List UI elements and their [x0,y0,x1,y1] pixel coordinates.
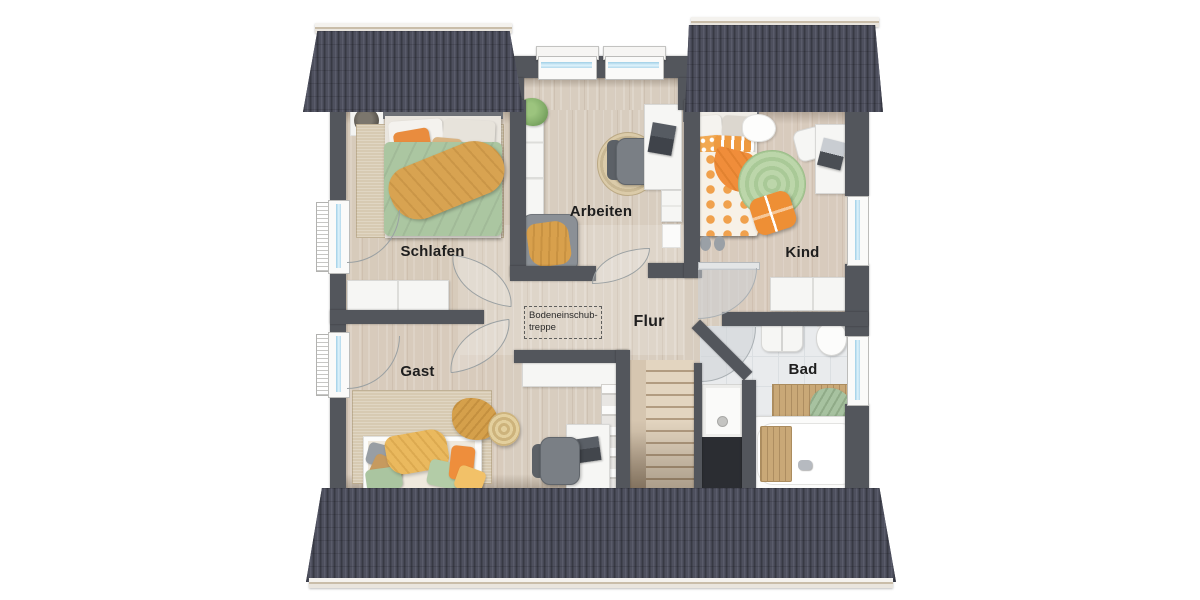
wall-right [845,404,869,492]
attic-hatch-annotation: Bodeneinschub- treppe [524,306,602,339]
wall-schlafen-arbeiten [510,100,526,277]
kind-sideboard [770,277,856,311]
slipper [700,236,711,251]
wall-bad-west [742,380,756,492]
woven-pouf [488,412,520,446]
window-glass [336,336,341,392]
wall-dormer [662,56,690,78]
floor-plan: Schlafen Arbeiten Kind Flur Gast Bad Bod… [0,0,1200,600]
roof-ridge-bottom [309,578,893,588]
roof-top-right [685,25,883,112]
window-glass [541,62,592,68]
dormer-window [538,56,597,80]
window-glass [608,62,659,68]
attic-hatch-line1: Bodeneinschub- [529,310,597,322]
wall-stairs-west [616,350,630,492]
window-glass [336,204,341,268]
dormer-window [605,56,664,80]
window-glass [855,200,860,260]
roof-top-left [303,31,524,112]
arbeiten-papers [662,224,681,248]
wall-stairs-east [694,363,702,492]
room-label-bad: Bad [770,361,836,378]
laptop [648,122,677,156]
wall-arbeiten-flur [510,266,596,281]
toilet [816,322,847,356]
wall-bad-north [722,312,868,326]
room-label-gast: Gast [385,363,450,380]
shower-drain [717,416,728,427]
shower-tray [702,384,744,438]
bathtub-caddy [760,426,792,482]
wall-schlafen-gast [330,310,484,324]
wall-left [330,396,346,492]
flur-office-chair [540,437,580,485]
wall-right [845,100,869,196]
bathtub-faucet [798,460,812,470]
room-label-arbeiten: Arbeiten [550,203,652,220]
wall-arbeiten-kind [684,100,700,278]
room-label-schlafen: Schlafen [380,243,485,260]
room-label-kind: Kind [770,244,835,261]
room-label-flur: Flur [615,313,683,331]
armchair-blanket [525,219,573,268]
attic-hatch-line2: treppe [529,322,597,334]
roof-bottom [306,488,896,582]
arbeiten-drawers [661,190,682,222]
staircase-shadow [630,420,694,490]
flur-sideboard [522,360,624,387]
under-stairs-void [702,437,742,490]
wall-flur-mid [514,350,628,363]
wall-left [330,100,346,200]
window-glass [855,340,860,400]
cloud-lamp [742,114,776,142]
slipper [714,236,725,251]
